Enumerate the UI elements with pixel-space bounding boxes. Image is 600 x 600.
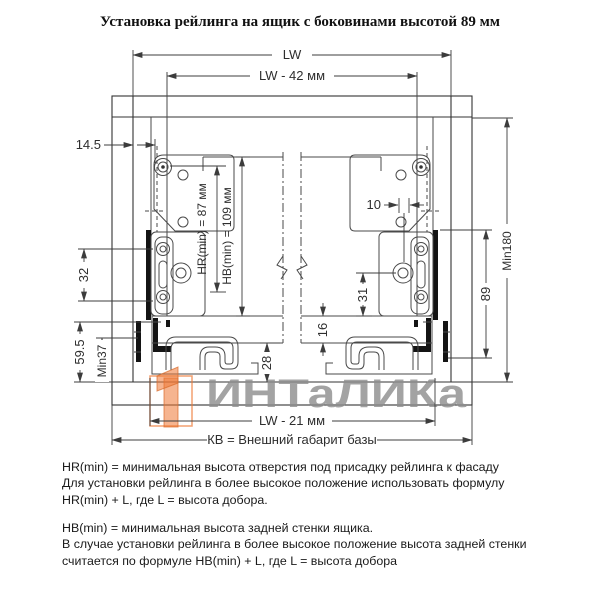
- note-hb-line1: HB(min) = минимальная высота задней стен…: [62, 520, 567, 536]
- dim-89-label: 89: [478, 287, 493, 301]
- dim-lw42-label: LW - 42 мм: [259, 68, 325, 83]
- note-hr-line3: HR(min) + L, где L = высота добора.: [62, 492, 567, 508]
- dim-32-label: 32: [76, 268, 91, 282]
- bracket-hole-icon: [178, 217, 188, 227]
- break-symbol-icon: [277, 256, 287, 279]
- dim-lw-label: LW: [283, 47, 302, 62]
- note-hb-line3: считается по формуле HB(min) + L, где L …: [62, 553, 567, 569]
- technical-drawing: ИНТаЛИКа LW LW - 42 мм 14.5 32: [0, 0, 600, 600]
- panel-screw-icon: [157, 243, 170, 256]
- note-hr-line1: HR(min) = минимальная высота отверстия п…: [62, 459, 567, 475]
- dim-595-label: 59.5: [72, 339, 87, 364]
- dim-16-label: 16: [315, 323, 330, 337]
- watermark-text: ИНТаЛИКа: [206, 372, 467, 416]
- back-panel: [203, 152, 287, 343]
- adjuster-screw-icon: [171, 263, 191, 283]
- brand-logo-icon: [150, 367, 192, 427]
- note-hr: HR(min) = минимальная высота отверстия п…: [62, 459, 567, 508]
- drawer-bottom-panel: [152, 316, 283, 343]
- dim-lw21-label: LW - 21 мм: [259, 413, 325, 428]
- dim-hr-label: HR(min) = 87 мм: [195, 183, 209, 275]
- dim-10-label: 10: [367, 197, 381, 212]
- dim-min180-label: Min180: [500, 231, 514, 271]
- dim-31-label: 31: [355, 288, 370, 302]
- cabinet-runner-clip: [136, 321, 141, 362]
- dim-145-label: 14.5: [76, 137, 101, 152]
- panel-screw-icon: [157, 291, 170, 304]
- note-hb: HB(min) = минимальная высота задней стен…: [62, 520, 567, 569]
- bracket-hole-icon: [178, 170, 188, 180]
- dim-hb-label: HB(min) = 109 мм: [220, 187, 234, 285]
- drawer-slide: [134, 321, 258, 374]
- note-hr-line2: Для установки рейлинга в более высокое п…: [62, 475, 567, 491]
- note-hb-line2: В случае установки рейлинга в более высо…: [62, 536, 567, 552]
- dim-kb-label: КВ = Внешний габарит базы: [207, 432, 377, 447]
- page: Установка рейлинга на ящик с боковинами …: [0, 0, 600, 600]
- dim-28-label: 28: [259, 356, 274, 370]
- dim-min37-label: Min37: [95, 344, 109, 377]
